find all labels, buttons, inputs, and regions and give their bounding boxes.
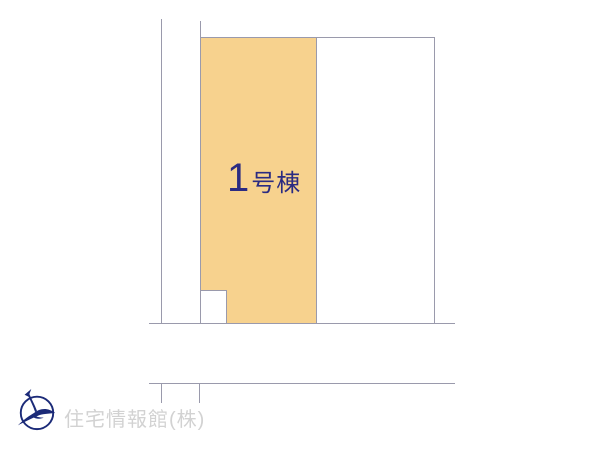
company-name: 住宅情報館(株) [64,403,205,432]
road-boundary-upper-line [149,323,455,324]
parcel-corner-notch [200,290,227,324]
company-watermark: 住宅情報館(株) [16,388,205,434]
road-boundary-lower-line [149,383,455,384]
building-label: 1号棟 [227,158,301,198]
left-boundary-line [161,19,162,323]
building-number: 1 [227,158,251,198]
parcel-left-edge-extension-line [200,21,201,38]
building-suffix: 号棟 [251,172,301,196]
adjacent-parcel [316,37,435,324]
bird-in-circle-logo-icon [16,388,58,434]
site-plan-diagram: 1号棟 住宅情報館(株) [0,0,600,450]
